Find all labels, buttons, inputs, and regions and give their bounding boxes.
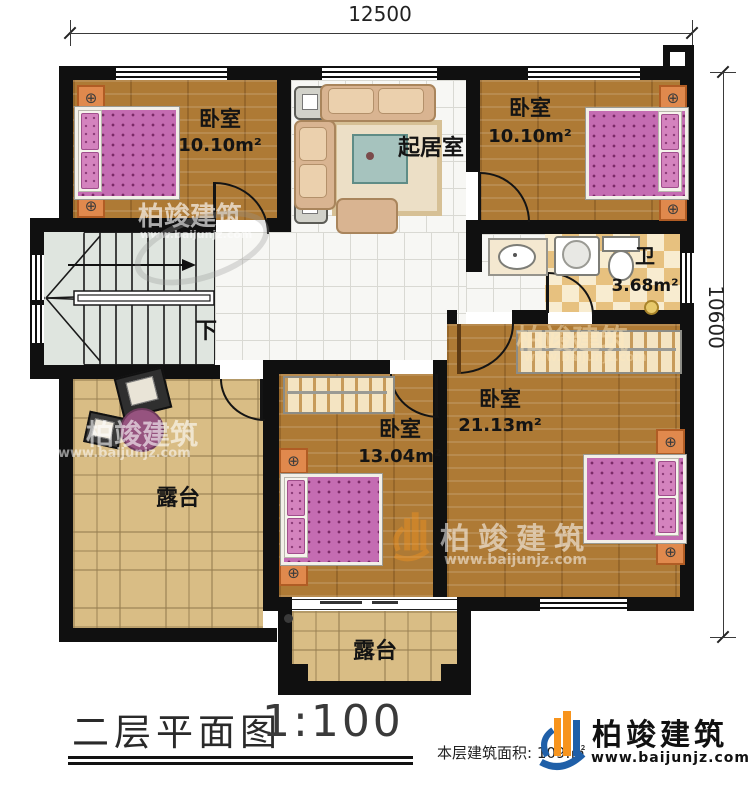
nightstand-icon: ⊕ <box>659 85 687 110</box>
wall <box>447 310 457 324</box>
plan-caption: 二层平面图 <box>72 702 282 756</box>
wardrobe-rod <box>287 391 387 394</box>
pillow <box>658 498 676 533</box>
dimension-stub <box>70 20 71 46</box>
sofa-cushion <box>299 127 327 161</box>
wall <box>627 597 694 611</box>
watermark-logo-icon <box>386 508 436 564</box>
company-logo-icon <box>537 706 587 772</box>
nightstand-icon: ⊕ <box>659 196 687 221</box>
dimension-stub <box>692 20 693 46</box>
room-label-bedroom-top-left: 卧室 <box>150 108 290 131</box>
wall <box>59 379 73 642</box>
nightstand-icon: ⊕ <box>656 429 685 455</box>
wall <box>267 218 291 232</box>
room-label-living: 起居室 <box>361 137 501 161</box>
window <box>30 255 44 300</box>
company-website: www.baijunjz.com <box>591 750 750 766</box>
pillow <box>661 114 679 150</box>
wardrobe <box>283 376 395 414</box>
stairs-direction-label: 下 <box>188 320 224 344</box>
company-name: 柏竣建筑 <box>592 710 728 754</box>
window <box>30 305 44 343</box>
knob-icon <box>644 300 659 315</box>
dimension-height-label: 10600 <box>704 277 728 357</box>
drain-dot <box>284 614 293 623</box>
wall <box>466 220 694 234</box>
dimension-width-label: 12500 <box>300 2 460 26</box>
sofa-cushion <box>328 88 374 114</box>
wall-corner-block <box>278 664 308 695</box>
sofa-cushion <box>378 88 424 114</box>
wall <box>263 360 279 597</box>
window <box>322 66 437 80</box>
window <box>116 66 227 80</box>
room-area-bedroom-middle: 13.04m² <box>340 447 460 467</box>
dimension-line-top <box>70 33 692 34</box>
sofa-cushion <box>299 164 327 198</box>
pillow <box>81 113 99 150</box>
pillow <box>287 480 305 516</box>
sliding-door-panel <box>372 601 398 604</box>
wall <box>59 80 73 232</box>
wall-corner-block <box>441 664 471 695</box>
floor-area-label: 本层建筑面积: <box>437 744 532 762</box>
wall <box>30 218 59 232</box>
room-label-terrace-left: 露台 <box>108 487 248 511</box>
watermark-url: www.baijunjz.com <box>58 446 191 461</box>
title-underline <box>68 756 413 765</box>
floor-plan-canvas: 12500 10600 <box>0 0 750 785</box>
door-leaf <box>260 379 263 419</box>
plan-scale: 1:100 <box>262 696 404 747</box>
pillow <box>658 461 676 496</box>
dimension-stub <box>710 637 736 638</box>
watermark-url: www.baijunjz.com <box>524 350 647 364</box>
side-table-top <box>302 94 318 110</box>
wall <box>263 360 390 374</box>
pillow <box>287 518 305 554</box>
chaise <box>336 198 398 234</box>
wall <box>263 597 292 611</box>
wall <box>466 234 482 272</box>
sink-drain <box>513 253 517 257</box>
door-leaf <box>457 324 461 374</box>
sink-icon <box>498 244 536 270</box>
nightstand-icon: ⊕ <box>279 448 308 474</box>
room-area-bathroom: 3.68m² <box>600 277 690 296</box>
wall <box>59 628 277 642</box>
room-label-terrace-bottom: 露台 <box>300 640 450 664</box>
pillow <box>661 152 679 188</box>
room-label-bedroom-top-right: 卧室 <box>460 97 600 120</box>
room-label-bathroom: 卫 <box>600 245 690 267</box>
room-area-bedroom-master: 21.13m² <box>430 416 570 436</box>
watermark-url: www.baijunjz.com <box>444 552 587 568</box>
wall <box>437 360 447 374</box>
window <box>528 66 640 80</box>
room-label-bedroom-master: 卧室 <box>430 388 570 411</box>
pillow <box>81 152 99 189</box>
room-area-bedroom-top-left: 10.10m² <box>150 136 290 156</box>
window <box>540 597 627 611</box>
wall <box>457 597 540 611</box>
washing-machine-drum <box>562 240 591 269</box>
dimension-stub <box>710 72 736 73</box>
door-leaf <box>546 272 549 313</box>
door-leaf <box>478 172 481 220</box>
chimney-flue <box>670 52 685 66</box>
sliding-door-panel <box>320 601 362 604</box>
